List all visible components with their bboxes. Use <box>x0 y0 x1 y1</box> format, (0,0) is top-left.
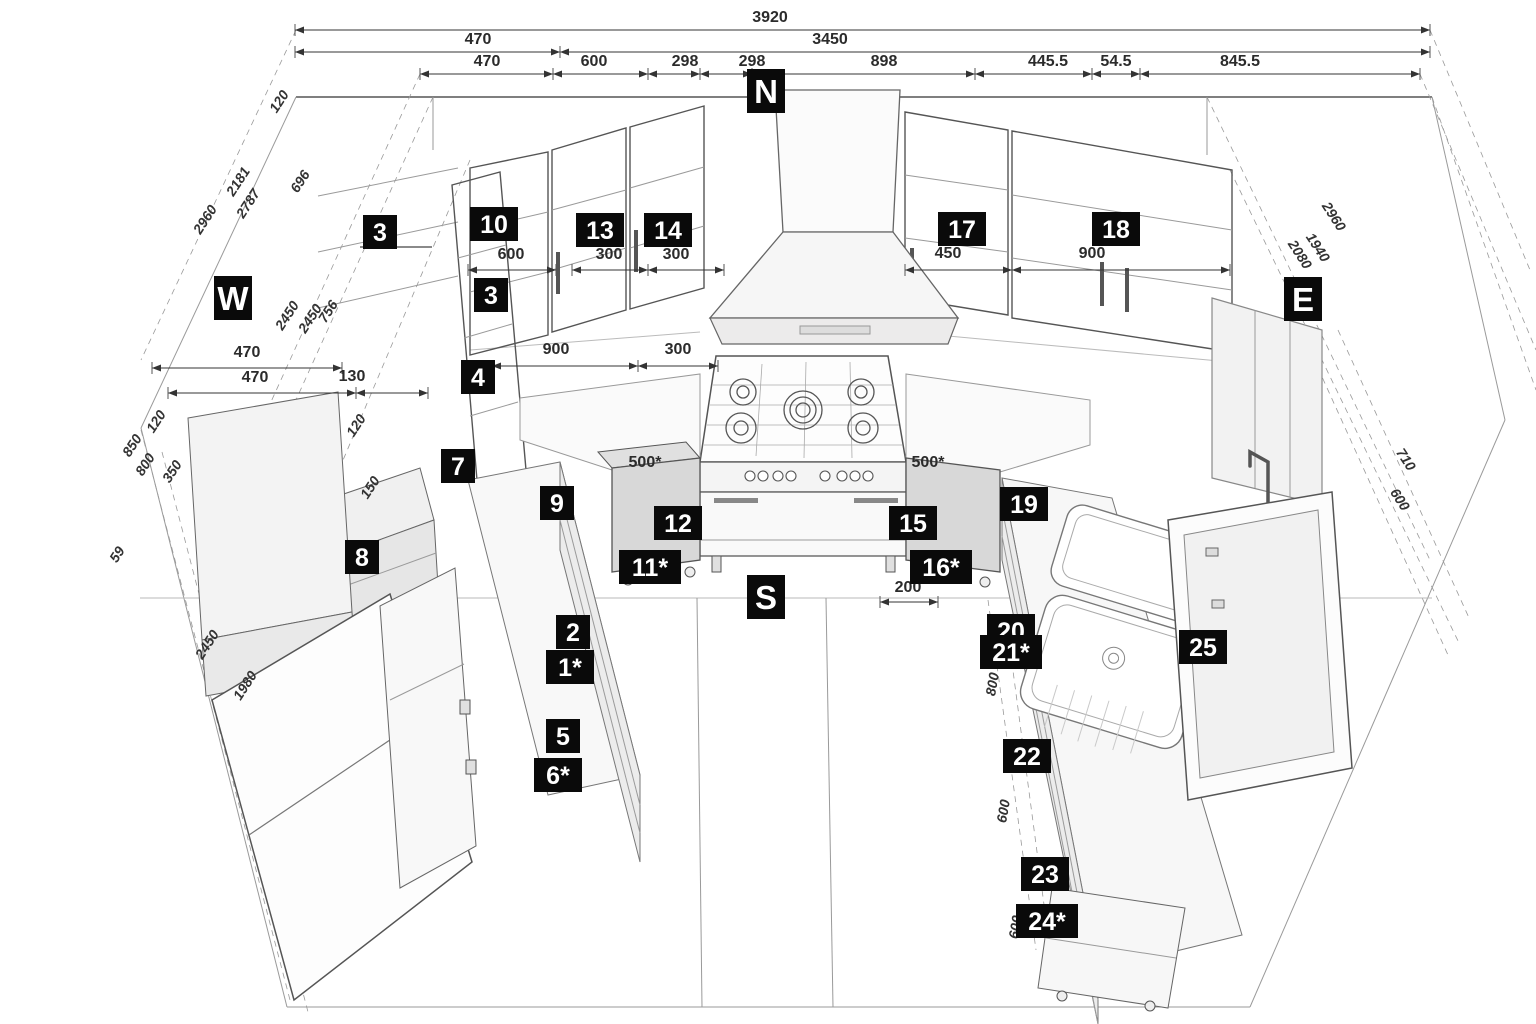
dimension-label-rotated: 600 <box>1387 485 1413 513</box>
compass-letter: S <box>755 579 777 616</box>
item-tag: 4 <box>461 360 495 394</box>
item-tag: 16* <box>910 550 972 584</box>
stove-leg <box>886 556 895 572</box>
item-tag-number: 13 <box>586 217 614 245</box>
kitchen-plan-canvas: 39204703450470600298298898445.554.5845.5… <box>0 0 1536 1024</box>
item-tag-number: 3 <box>484 282 498 310</box>
item-tag-number: 5 <box>556 723 570 751</box>
dimension-label: 300 <box>663 246 690 263</box>
item-tag: 3 <box>363 215 397 249</box>
item-tag: 7 <box>441 449 475 483</box>
item-tag: 12 <box>654 506 702 540</box>
hinge <box>1206 548 1218 556</box>
dimension-label-rotated: 120 <box>343 411 369 439</box>
caster-wheel <box>1145 1001 1155 1011</box>
range-stove <box>700 356 906 572</box>
item-tag-number: 14 <box>654 217 682 245</box>
item-tag: 13 <box>576 213 624 247</box>
dimension-label-rotated: 756 <box>315 297 341 325</box>
dimension-label-rotated: 120 <box>266 87 292 115</box>
compass-letter: N <box>754 73 778 110</box>
item-tag: 23 <box>1021 857 1069 891</box>
item-tag: 9 <box>540 486 574 520</box>
item-tag: 18 <box>1092 212 1140 246</box>
hinge <box>466 760 476 774</box>
compass-letter: E <box>1292 281 1314 318</box>
item-tag: 15 <box>889 506 937 540</box>
item-tag-number: 11* <box>632 554 668 582</box>
dimension-label: 3450 <box>812 31 848 48</box>
dimension-label: 470 <box>474 53 501 70</box>
dimension-label-rotated: 59 <box>106 543 128 565</box>
dimension-label-rotated: 2960 <box>1318 198 1349 234</box>
compass-letter: W <box>217 280 249 317</box>
item-tag-number: 6* <box>546 762 570 790</box>
item-tag-number: 7 <box>451 453 465 481</box>
item-tag-number: 19 <box>1010 491 1038 519</box>
dimension-label: 54.5 <box>1100 53 1131 70</box>
caster-wheel <box>1057 991 1067 1001</box>
dimension-label-rotated: 2960 <box>189 202 220 238</box>
item-tag: 1* <box>546 650 594 684</box>
item-tag: 10 <box>470 207 518 241</box>
item-tag-number: 24* <box>1028 908 1066 936</box>
dimension-label: 600 <box>498 246 525 263</box>
compass-n: N <box>747 69 785 113</box>
compass-w: W <box>214 276 252 320</box>
item-tag: 6* <box>534 758 582 792</box>
item-tag: 11* <box>619 550 681 584</box>
dimension-label: 900 <box>543 341 570 358</box>
cabinet-handle <box>1100 262 1104 306</box>
dimension-label: 3920 <box>752 9 788 26</box>
item-tag-number: 21* <box>992 639 1030 667</box>
item-tag: 8 <box>345 540 379 574</box>
item-tag-number: 8 <box>355 544 369 572</box>
range-hood <box>710 90 958 344</box>
dimension-label: 298 <box>739 53 766 70</box>
item-tag-number: 25 <box>1189 634 1217 662</box>
dimension-label-rotated: 696 <box>287 167 313 195</box>
dimension-label: 900 <box>1079 245 1106 262</box>
dimension-label: 298 <box>672 53 699 70</box>
caster-wheel <box>980 577 990 587</box>
hinge <box>460 700 470 714</box>
dimension-label: 470 <box>242 369 269 386</box>
oven-handle <box>854 498 898 503</box>
item-tag: 25 <box>1179 630 1227 664</box>
cabinet-handle <box>634 230 638 272</box>
dimension-label: 470 <box>465 31 492 48</box>
item-tag: 17 <box>938 212 986 246</box>
dimension-label: 300 <box>596 246 623 263</box>
item-tag-number: 22 <box>1013 743 1041 771</box>
item-tag: 24* <box>1016 904 1078 938</box>
dimension-label-rotated: 600 <box>993 798 1013 824</box>
item-tag: 3 <box>474 278 508 312</box>
caster-wheel <box>685 567 695 577</box>
dimension-label: 600 <box>581 53 608 70</box>
item-tag: 5 <box>546 719 580 753</box>
item-tag: 2 <box>556 615 590 649</box>
item-tag: 22 <box>1003 739 1051 773</box>
oven-handle <box>714 498 758 503</box>
item-tag-number: 3 <box>373 219 387 247</box>
dimension-label-rotated: 800 <box>982 671 1002 697</box>
compass-e: E <box>1284 277 1322 321</box>
item-tag-number: 2 <box>566 619 580 647</box>
dimension-label: 445.5 <box>1028 53 1068 70</box>
dimension-label: 845.5 <box>1220 53 1260 70</box>
item-tag-number: 16* <box>922 554 960 582</box>
dimension-label-rotated: 350 <box>159 457 185 485</box>
kitchen-3d-drawing: 39204703450470600298298898445.554.5845.5… <box>0 0 1536 1024</box>
dimension-label: 500* <box>912 454 946 471</box>
item-tag-number: 23 <box>1031 861 1059 889</box>
item-tag: 19 <box>1000 487 1048 521</box>
dimension-label: 470 <box>234 344 261 361</box>
dimension-label: 898 <box>871 53 898 70</box>
item-tag: 14 <box>644 213 692 247</box>
item-tag-number: 4 <box>471 364 485 392</box>
dimension-label: 450 <box>935 245 962 262</box>
compass-s: S <box>747 575 785 619</box>
hinge <box>1212 600 1224 608</box>
stove-leg <box>712 556 721 572</box>
dimension-label: 300 <box>665 341 692 358</box>
dimension-label-rotated: 120 <box>143 407 169 435</box>
dimension-label-rotated: 710 <box>1393 445 1419 473</box>
item-tag-number: 15 <box>899 510 927 538</box>
item-tag-number: 9 <box>550 490 564 518</box>
cabinet-handle <box>556 252 560 294</box>
item-tag-number: 18 <box>1102 216 1130 244</box>
item-tag-number: 12 <box>664 510 692 538</box>
dimension-label: 130 <box>339 368 366 385</box>
item-tag-number: 1* <box>558 654 582 682</box>
cabinet-handle <box>1125 268 1129 312</box>
hood-vent <box>800 326 870 334</box>
dimension-label: 500* <box>629 454 663 471</box>
item-tag-number: 10 <box>480 211 508 239</box>
item-tag: 21* <box>980 635 1042 669</box>
dimension-label-rotated: 800 <box>132 450 158 478</box>
item-tag-number: 17 <box>948 216 976 244</box>
